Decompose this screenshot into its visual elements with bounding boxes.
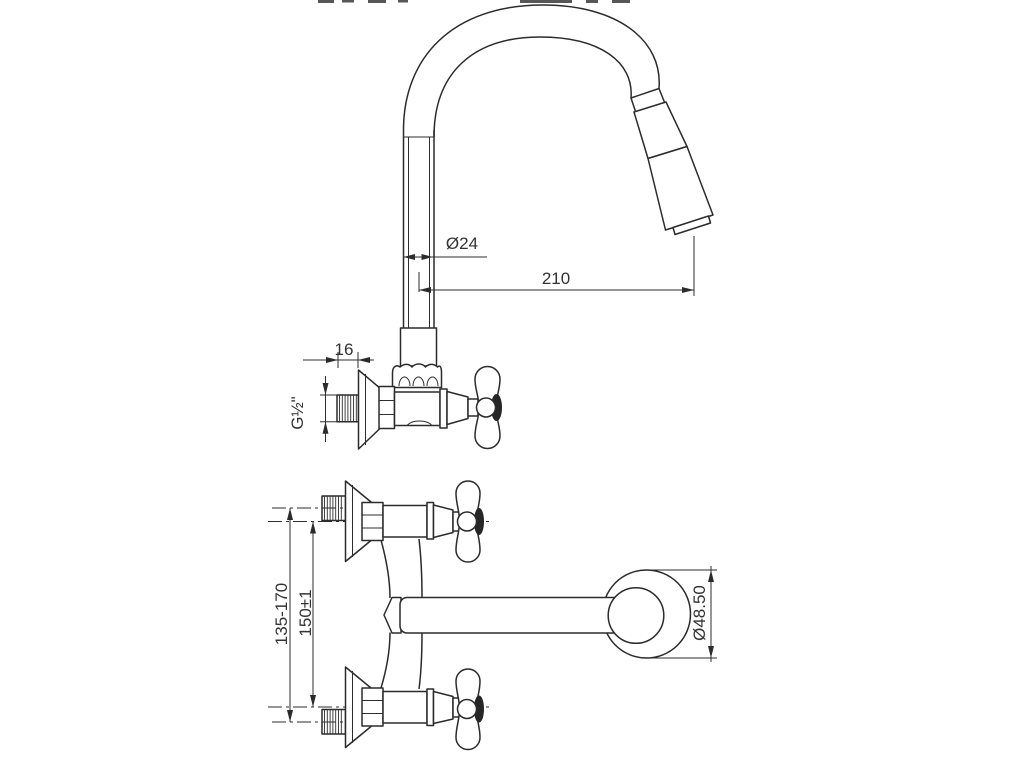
side-view: Ø24 210 16 G½" (288, 5, 713, 449)
gooseneck-spout (404, 5, 660, 328)
dimension-nipple-length: 16 (303, 340, 374, 368)
valve-body (383, 503, 460, 540)
handle-hub (458, 700, 477, 719)
valve-body (383, 689, 460, 726)
drawing-canvas: Ø24 210 16 G½" (0, 0, 1024, 768)
dim-label-reach: 210 (542, 269, 570, 288)
watermark-remnant (318, 0, 630, 3)
wall-flange (359, 370, 382, 449)
hex-nut (362, 503, 383, 541)
spout-hex-root (384, 598, 401, 634)
handle-hub (458, 512, 477, 531)
dim-label-nipple-length: 16 (335, 340, 354, 359)
dimension-wall-centers: 135-170 (272, 508, 293, 722)
threaded-nipple (337, 395, 359, 422)
cross-handle (456, 481, 484, 562)
dim-label-wall-centers: 135-170 (272, 583, 291, 645)
bottom-valve-assembly (322, 667, 484, 750)
dim-label-valve-centers: 150±1 (296, 589, 315, 636)
spout-front (384, 570, 691, 658)
handle-hub (477, 398, 496, 417)
dim-label-pipe-diameter: Ø24 (446, 234, 478, 253)
hex-nut (362, 688, 383, 726)
valve-body (395, 389, 479, 428)
dim-label-flange-diameter: Ø48.50 (690, 585, 709, 641)
hex-nut (379, 387, 395, 429)
dimension-pipe-diameter: Ø24 (404, 234, 488, 260)
cross-handle (456, 669, 484, 750)
spout-tube (400, 598, 636, 634)
front-view: 135-170 150±1 Ø48.50 (268, 481, 717, 750)
spout-base-nut (393, 328, 442, 388)
dimension-valve-centers: 150±1 (296, 522, 316, 708)
cross-handle (475, 367, 502, 449)
top-valve-assembly (322, 481, 484, 562)
dimension-thread-size: G½" (288, 376, 338, 442)
dim-label-thread-size: G½" (288, 396, 307, 429)
spray-head (631, 89, 713, 235)
faucet-technical-drawing: Ø24 210 16 G½" (0, 0, 1024, 768)
spout-ball-end (608, 588, 664, 644)
